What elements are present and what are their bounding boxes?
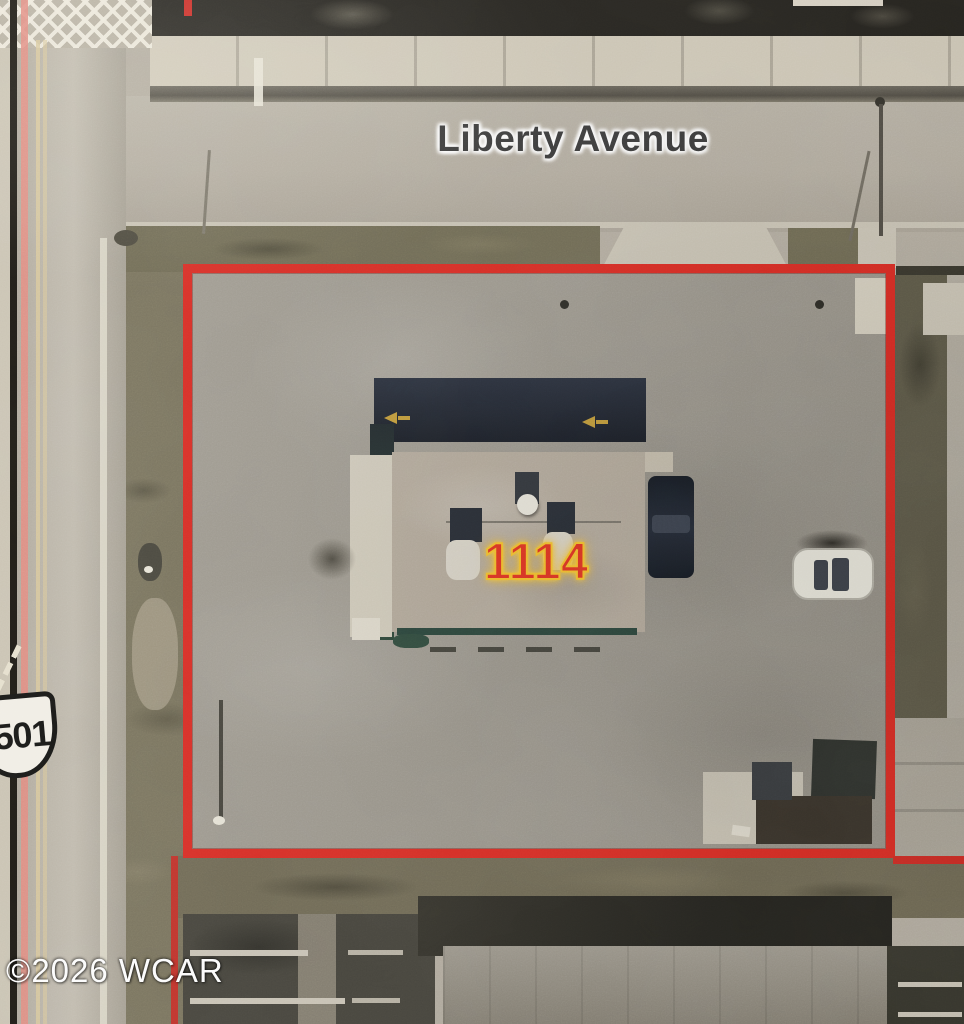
south-building-roof (443, 946, 887, 1024)
road-center-line (36, 40, 40, 1024)
boundary-line-east-extension (893, 856, 964, 864)
aerial-parcel-photo: 501 Liberty Avenue 1114 ©2026 WCAR (0, 0, 964, 1024)
south-walkway (298, 914, 336, 1024)
parking-stripe (898, 1012, 962, 1017)
boundary-line-north-tick (184, 0, 192, 16)
parking-stripe (348, 950, 403, 955)
parking-stripe (190, 998, 345, 1004)
property-line-black (10, 0, 17, 1024)
copyright-watermark: ©2026 WCAR (6, 952, 286, 990)
road-center-line-2 (43, 40, 47, 1024)
dirt-patch (132, 598, 178, 710)
lane-marking (254, 58, 263, 106)
concrete-pad-east (923, 283, 964, 335)
roadside-sign-shadow (138, 543, 162, 581)
liberty-avenue-road (0, 96, 964, 232)
parking-stripe (898, 982, 962, 987)
route-shield-number: 501 (0, 712, 52, 759)
road-edge-line (100, 238, 107, 1024)
roadside-sign (144, 566, 153, 573)
parking-stripe (352, 998, 400, 1003)
concrete-apron-ne (858, 228, 896, 268)
property-line-pink (21, 0, 28, 1024)
bush (114, 230, 138, 246)
north-curb-gutter (150, 86, 964, 102)
parking-stripe-east (793, 0, 883, 6)
parcel-number-label: 1114 (460, 532, 612, 592)
grass-strip-east (893, 275, 947, 725)
utility-pole (879, 104, 883, 236)
neighbor-pavement-se (893, 718, 964, 860)
boundary-line-south-extension (171, 856, 178, 1024)
west-sidewalk (0, 0, 10, 1024)
adjoining-lot-line (896, 266, 964, 275)
street-name-label: Liberty Avenue (420, 118, 726, 160)
north-sidewalk (150, 34, 964, 92)
